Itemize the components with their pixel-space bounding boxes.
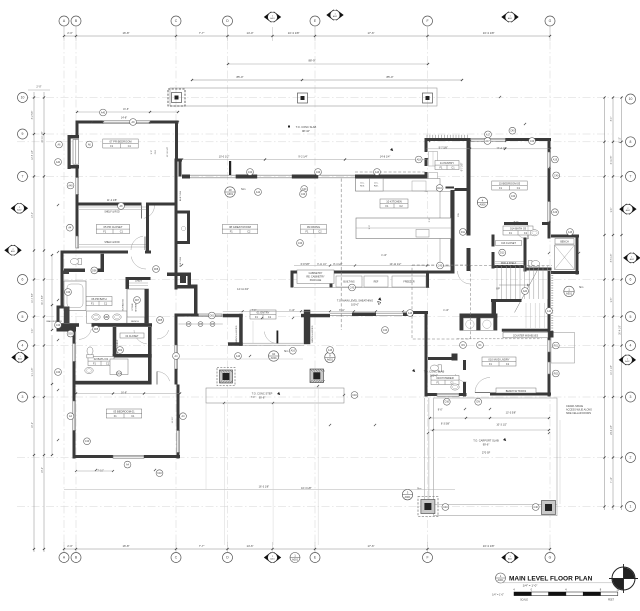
svg-text:D03: D03 <box>68 333 73 336</box>
svg-text:C40: C40 <box>383 329 388 332</box>
svg-text:2'-0": 2'-0" <box>36 85 41 89</box>
svg-text:BENCH W/ HOOKS: BENCH W/ HOOKS <box>506 391 527 393</box>
svg-text:A402: A402 <box>626 209 630 212</box>
svg-text:10'-7 1/8": 10'-7 1/8" <box>611 365 613 375</box>
svg-text:BUILT-INS: BUILT-INS <box>343 281 355 284</box>
svg-text:4: 4 <box>630 344 632 348</box>
svg-text:C40: C40 <box>85 440 90 443</box>
svg-text:Refr.: Refr. <box>360 184 365 187</box>
svg-text:14'-8": 14'-8" <box>121 117 127 120</box>
svg-text:4'-10": 4'-10" <box>620 137 622 143</box>
svg-text:A18: A18 <box>417 158 422 161</box>
svg-text:8: 8 <box>630 140 632 144</box>
svg-text:T.O. CARPORT SLAB: T.O. CARPORT SLAB <box>473 439 499 443</box>
svg-text:BENCH: BENCH <box>131 321 139 323</box>
svg-text:99'-8": 99'-8" <box>259 396 266 400</box>
svg-text:014 BATH 03: 014 BATH 03 <box>510 227 526 231</box>
svg-text:G: G <box>549 19 552 23</box>
svg-text:05 PR CLOSET: 05 PR CLOSET <box>104 225 123 229</box>
svg-text:C40: C40 <box>248 171 253 174</box>
svg-text:SHELF & ROD: SHELF & ROD <box>104 242 120 244</box>
svg-text:7'-7": 7'-7" <box>199 544 205 548</box>
svg-text:Sim: Sim <box>417 488 421 491</box>
svg-text:4'-10": 4'-10" <box>289 310 295 312</box>
svg-text:5: 5 <box>630 315 632 319</box>
svg-text:A16: A16 <box>328 349 333 352</box>
svg-text:D07: D07 <box>135 299 140 302</box>
svg-text:COUNTER W/SHELVES: COUNTER W/SHELVES <box>513 335 539 337</box>
svg-text:A601: A601 <box>327 358 334 362</box>
svg-text:D05: D05 <box>94 328 99 331</box>
svg-text:2'-0": 2'-0" <box>67 544 73 548</box>
svg-text:CLG: CLG <box>155 149 157 154</box>
svg-text:A401: A401 <box>270 17 274 20</box>
svg-text:15 BEDROOM 03: 15 BEDROOM 03 <box>499 182 521 186</box>
svg-text:D10: D10 <box>437 187 442 190</box>
svg-text:30'-7 5/8": 30'-7 5/8" <box>42 295 44 305</box>
svg-text:9'-0": 9'-0" <box>369 225 371 230</box>
svg-text:DN: DN <box>476 401 480 404</box>
svg-text:D08: D08 <box>154 268 159 271</box>
svg-text:010 MUD LNDRY: 010 MUD LNDRY <box>488 358 509 362</box>
svg-text:9'-1 1/8": 9'-1 1/8" <box>32 368 34 377</box>
svg-text:016 POWDER: 016 POWDER <box>436 376 453 380</box>
svg-text:A402: A402 <box>17 208 21 211</box>
svg-text:100'-0": 100'-0" <box>351 303 359 307</box>
svg-text:C40: C40 <box>56 371 61 374</box>
svg-text:10: 10 <box>272 352 276 356</box>
svg-text:7: 7 <box>630 175 632 179</box>
svg-text:14'-11 3/4": 14'-11 3/4" <box>237 288 249 291</box>
svg-text:99'-6": 99'-6" <box>483 443 490 447</box>
svg-text:D04: D04 <box>117 372 122 375</box>
svg-text:Sim: Sim <box>241 187 245 191</box>
svg-text:85'-0": 85'-0" <box>236 75 243 79</box>
svg-text:C40: C40 <box>511 195 516 198</box>
svg-text:F: F <box>426 19 428 23</box>
svg-text:A12: A12 <box>256 191 261 194</box>
svg-text:FEET: FEET <box>608 599 615 602</box>
svg-text:03 BEDROOM 01: 03 BEDROOM 01 <box>113 410 135 414</box>
svg-text:07 PR BEDROOM: 07 PR BEDROOM <box>109 140 132 144</box>
svg-text:8'-0": 8'-0" <box>611 117 613 122</box>
svg-text:16'-3 1/8": 16'-3 1/8" <box>483 544 495 548</box>
svg-text:C40: C40 <box>443 506 448 509</box>
svg-text:T.O. CONC SLAB: T.O. CONC SLAB <box>424 370 445 374</box>
svg-text:A402: A402 <box>625 360 629 363</box>
svg-text:U.C.: U.C. <box>374 183 379 185</box>
svg-text:02 BATH 01: 02 BATH 01 <box>94 357 109 361</box>
svg-text:A501: A501 <box>566 292 573 296</box>
svg-text:BUILT-INS: BUILT-INS <box>180 190 182 201</box>
svg-text:16'-3 1/8": 16'-3 1/8" <box>259 486 270 489</box>
svg-text:Sim: Sim <box>284 350 288 353</box>
svg-text:A40: A40 <box>68 184 73 187</box>
svg-text:BENCH & HOOKS: BENCH & HOOKS <box>236 325 238 342</box>
svg-text:8'-5 1/8": 8'-5 1/8" <box>611 254 613 263</box>
svg-text:C40: C40 <box>510 130 515 133</box>
svg-text:98'-10": 98'-10" <box>302 129 310 133</box>
svg-text:17'-6": 17'-6" <box>367 31 374 35</box>
svg-text:BENCH & HOOKS: BENCH & HOOKS <box>312 325 314 342</box>
svg-text:16'-8": 16'-8" <box>123 108 129 111</box>
svg-text:SHELF & ROD: SHELF & ROD <box>104 212 120 214</box>
svg-text:A601: A601 <box>404 495 411 499</box>
svg-text:A13: A13 <box>375 171 380 174</box>
svg-text:A19: A19 <box>553 158 558 161</box>
svg-text:06 PR BATH: 06 PR BATH <box>91 297 106 301</box>
svg-text:A16: A16 <box>408 312 413 315</box>
svg-text:10: 10 <box>629 97 633 101</box>
svg-text:C40: C40 <box>534 506 539 509</box>
svg-text:R02: R02 <box>554 372 559 375</box>
svg-text:36'-4 1/8": 36'-4 1/8" <box>620 325 622 335</box>
svg-text:013 CLOSET: 013 CLOSET <box>501 242 516 245</box>
svg-text:A601: A601 <box>271 356 278 360</box>
svg-text:85'-0": 85'-0" <box>386 75 393 79</box>
svg-text:A40: A40 <box>101 111 106 114</box>
svg-text:5: 5 <box>22 315 24 319</box>
svg-text:R01: R01 <box>554 344 559 347</box>
svg-text:1/4" = 1'-0": 1/4" = 1'-0" <box>492 593 504 596</box>
svg-text:10: 10 <box>228 188 232 192</box>
svg-text:8'-11": 8'-11" <box>339 310 345 312</box>
svg-text:A17: A17 <box>485 140 490 143</box>
svg-text:7'-0": 7'-0" <box>251 397 256 399</box>
svg-text:10: 10 <box>21 96 25 100</box>
svg-text:13'-3 5/8": 13'-3 5/8" <box>506 411 517 414</box>
svg-text:T.O. CONC SLAB: T.O. CONC SLAB <box>296 125 317 129</box>
svg-text:C40: C40 <box>56 324 61 327</box>
svg-text:C40: C40 <box>301 193 306 196</box>
svg-text:270 SF: 270 SF <box>482 451 491 455</box>
svg-text:2: 2 <box>630 456 632 460</box>
svg-text:24'-4 1/8": 24'-4 1/8" <box>611 425 613 435</box>
svg-text:A16: A16 <box>236 355 241 358</box>
svg-text:A001: A001 <box>292 558 299 562</box>
svg-text:6'-7 3/8": 6'-7 3/8" <box>461 163 463 172</box>
svg-text:D13: D13 <box>500 252 505 255</box>
svg-text:16'-3 1/8": 16'-3 1/8" <box>301 487 312 490</box>
svg-text:10'-3 1/8": 10'-3 1/8" <box>288 31 300 35</box>
svg-text:12'-5 1/8": 12'-5 1/8" <box>32 150 34 160</box>
svg-text:14'-6": 14'-6" <box>246 544 253 548</box>
svg-text:A17: A17 <box>486 133 491 136</box>
svg-text:A002: A002 <box>630 258 634 261</box>
svg-text:9'-2 1/4": 9'-2 1/4" <box>298 155 307 158</box>
svg-text:C40: C40 <box>316 171 321 174</box>
svg-text:C40: C40 <box>157 472 162 475</box>
svg-text:11 PANTRY: 11 PANTRY <box>440 161 454 165</box>
svg-text:4: 4 <box>22 344 24 348</box>
svg-text:7'-10": 7'-10" <box>611 477 613 483</box>
svg-text:9: 9 <box>22 132 24 136</box>
svg-text:A401: A401 <box>270 558 274 561</box>
svg-text:A002: A002 <box>333 15 337 18</box>
svg-text:2'-6": 2'-6" <box>429 218 431 223</box>
svg-text:U.C.: U.C. <box>360 183 365 185</box>
svg-text:MAIN LEVEL FLOOR PLAN: MAIN LEVEL FLOOR PLAN <box>509 575 593 582</box>
svg-text:04 CLOSET: 04 CLOSET <box>126 335 139 338</box>
svg-text:A15: A15 <box>568 231 573 234</box>
svg-text:1/4" = 1'-0": 1/4" = 1'-0" <box>523 584 538 588</box>
svg-text:2'-0": 2'-0" <box>67 31 73 35</box>
svg-text:C40: C40 <box>350 286 355 289</box>
svg-text:D11: D11 <box>461 231 466 234</box>
svg-text:Refr.: Refr. <box>374 184 379 187</box>
svg-text:A006: A006 <box>479 203 486 207</box>
svg-text:8'-2 5/8": 8'-2 5/8" <box>32 111 34 120</box>
svg-text:A20: A20 <box>523 290 528 293</box>
svg-text:C40: C40 <box>66 291 71 294</box>
svg-text:D01: D01 <box>210 314 215 317</box>
svg-text:A16: A16 <box>291 350 296 353</box>
svg-text:18'-2": 18'-2" <box>42 467 44 473</box>
svg-text:C40: C40 <box>298 242 303 245</box>
svg-text:3: 3 <box>630 395 632 399</box>
svg-text:A001: A001 <box>497 578 504 582</box>
svg-text:F: F <box>426 556 428 560</box>
svg-text:T.O. CONC STEP: T.O. CONC STEP <box>252 392 273 396</box>
svg-text:14'-0": 14'-0" <box>246 31 253 35</box>
svg-text:08 GREAT ROOM: 08 GREAT ROOM <box>229 225 252 229</box>
svg-text:Sim: Sim <box>579 286 583 289</box>
svg-text:12'-10 1/8": 12'-10 1/8" <box>167 147 169 158</box>
svg-text:10'-0 1/2": 10'-0 1/2" <box>219 155 230 158</box>
svg-text:SCALE: SCALE <box>520 599 528 602</box>
svg-text:9'-0": 9'-0" <box>438 409 443 412</box>
svg-text:C40: C40 <box>438 264 443 267</box>
svg-text:6: 6 <box>22 278 24 282</box>
svg-text:4'-10": 4'-10" <box>381 255 387 257</box>
svg-text:D05: D05 <box>158 319 163 322</box>
svg-text:4'-10": 4'-10" <box>443 310 449 312</box>
svg-text:88'-9": 88'-9" <box>308 59 315 63</box>
svg-text:100'-0": 100'-0" <box>430 374 438 378</box>
svg-text:A19: A19 <box>553 211 558 214</box>
svg-text:3: 3 <box>22 395 24 399</box>
svg-text:STONE: STONE <box>132 303 134 311</box>
svg-text:PACKAGE: PACKAGE <box>310 279 322 282</box>
svg-text:C40: C40 <box>530 140 535 143</box>
svg-text:7: 7 <box>22 175 24 179</box>
svg-text:C40: C40 <box>352 394 357 397</box>
svg-text:A001: A001 <box>11 250 15 253</box>
svg-text:9'-8": 9'-8" <box>611 298 613 303</box>
svg-text:11'-10": 11'-10" <box>172 416 174 423</box>
svg-text:7'-0": 7'-0" <box>252 310 257 312</box>
svg-text:14'-8 1/4": 14'-8 1/4" <box>380 155 391 158</box>
svg-text:LINEN: LINEN <box>135 281 142 283</box>
svg-text:16'-3 1/8": 16'-3 1/8" <box>483 31 495 35</box>
svg-text:11'-2 1/8": 11'-2 1/8" <box>107 199 117 202</box>
svg-text:CURBLESS: CURBLESS <box>123 299 125 311</box>
svg-text:A10: A10 <box>547 310 552 313</box>
svg-text:MR: MR <box>105 316 109 319</box>
svg-text:D06: D06 <box>92 269 97 272</box>
svg-text:C40: C40 <box>554 174 559 177</box>
svg-text:A401: A401 <box>508 558 512 561</box>
svg-text:16'-2": 16'-2" <box>32 422 34 428</box>
svg-text:6: 6 <box>630 278 632 282</box>
svg-text:UP: UP <box>496 287 500 291</box>
svg-text:D16: D16 <box>445 401 450 404</box>
svg-text:8'-6": 8'-6" <box>514 221 519 224</box>
svg-text:A402: A402 <box>18 357 22 360</box>
svg-text:9'-4": 9'-4" <box>611 208 613 213</box>
svg-text:1: 1 <box>630 505 632 509</box>
svg-text:D02: D02 <box>118 349 123 352</box>
svg-text:7'-7": 7'-7" <box>199 31 205 35</box>
svg-text:17'-6": 17'-6" <box>367 544 374 548</box>
svg-text:16'-8": 16'-8" <box>122 544 129 548</box>
svg-text:20'-10 1/8": 20'-10 1/8" <box>42 131 44 142</box>
svg-text:9'-8": 9'-8" <box>151 150 153 155</box>
svg-text:REF: REF <box>374 281 379 284</box>
svg-text:09 DINING: 09 DINING <box>307 225 320 229</box>
svg-text:T.O. MAIN LEVEL SHEATHING: T.O. MAIN LEVEL SHEATHING <box>337 299 373 303</box>
svg-text:SIDE CELLAR DOORS: SIDE CELLAR DOORS <box>566 412 591 415</box>
svg-text:FREEZER: FREEZER <box>403 281 414 284</box>
svg-text:A40: A40 <box>56 161 61 164</box>
svg-text:6'-4 7/8": 6'-4 7/8" <box>611 156 613 165</box>
svg-text:6'-3 5/8": 6'-3 5/8" <box>441 422 450 425</box>
svg-text:10'-3 1/2": 10'-3 1/2" <box>496 424 507 427</box>
svg-text:ROD & SHELF: ROD & SHELF <box>501 263 517 265</box>
svg-text:G: G <box>549 556 552 560</box>
svg-text:A401: A401 <box>508 17 512 20</box>
svg-text:13'-0": 13'-0" <box>32 212 34 218</box>
svg-text:A601: A601 <box>227 192 234 196</box>
svg-text:10'-7 5/8": 10'-7 5/8" <box>32 293 34 303</box>
svg-text:7'-4": 7'-4" <box>32 329 34 334</box>
svg-text:16'-8": 16'-8" <box>122 31 129 35</box>
svg-text:BENCH: BENCH <box>560 241 569 244</box>
svg-text:10 KITCHEN: 10 KITCHEN <box>386 200 402 204</box>
svg-text:16'-8": 16'-8" <box>121 391 127 394</box>
